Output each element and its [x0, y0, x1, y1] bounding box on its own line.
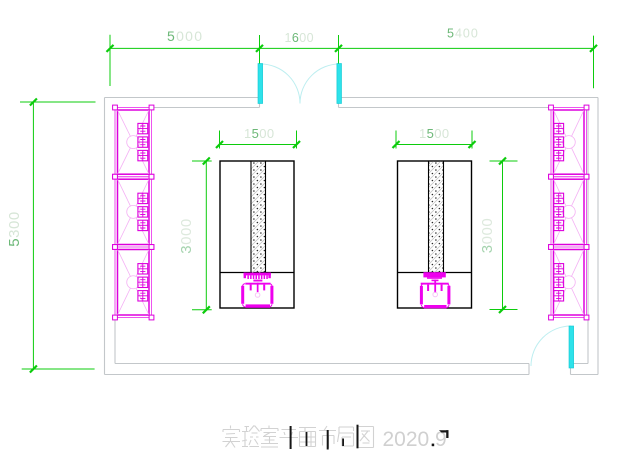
svg-text:5300: 5300: [6, 211, 23, 246]
svg-text:3000: 3000: [178, 218, 195, 253]
svg-text:5400: 5400: [447, 27, 479, 41]
svg-text:1600: 1600: [285, 31, 314, 45]
svg-text:5000: 5000: [167, 28, 203, 44]
svg-text:3000: 3000: [479, 218, 496, 253]
svg-text:1500: 1500: [244, 126, 275, 141]
svg-text:1500: 1500: [419, 126, 450, 141]
svg-text:2020.9: 2020.9: [383, 428, 447, 451]
